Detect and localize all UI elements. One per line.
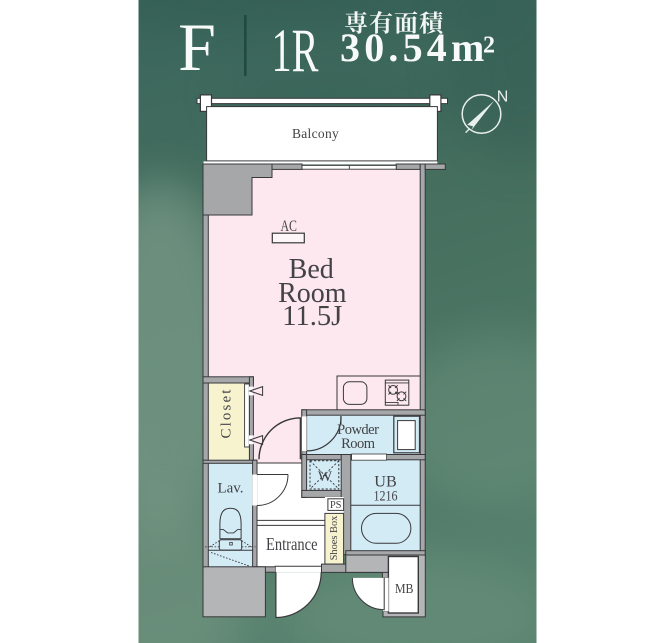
- svg-text:1R: 1R: [272, 18, 319, 85]
- svg-text:2: 2: [483, 33, 495, 59]
- svg-text:F: F: [178, 9, 216, 85]
- svg-text:11.5J: 11.5J: [282, 301, 342, 332]
- svg-text:W: W: [318, 469, 333, 485]
- svg-text:1216: 1216: [374, 487, 398, 504]
- svg-text:AC: AC: [280, 218, 297, 235]
- svg-text:PS: PS: [330, 500, 342, 511]
- svg-text:Lav.: Lav.: [217, 481, 243, 497]
- svg-text:MB: MB: [395, 582, 414, 597]
- svg-text:Entrance: Entrance: [266, 534, 318, 554]
- svg-text:N: N: [497, 89, 509, 106]
- svg-text:Shoes Box: Shoes Box: [329, 515, 340, 561]
- svg-text:Room: Room: [341, 436, 376, 452]
- svg-text:Balcony: Balcony: [292, 126, 339, 141]
- svg-text:30.54m: 30.54m: [340, 25, 489, 70]
- svg-text:Closet: Closet: [219, 388, 235, 439]
